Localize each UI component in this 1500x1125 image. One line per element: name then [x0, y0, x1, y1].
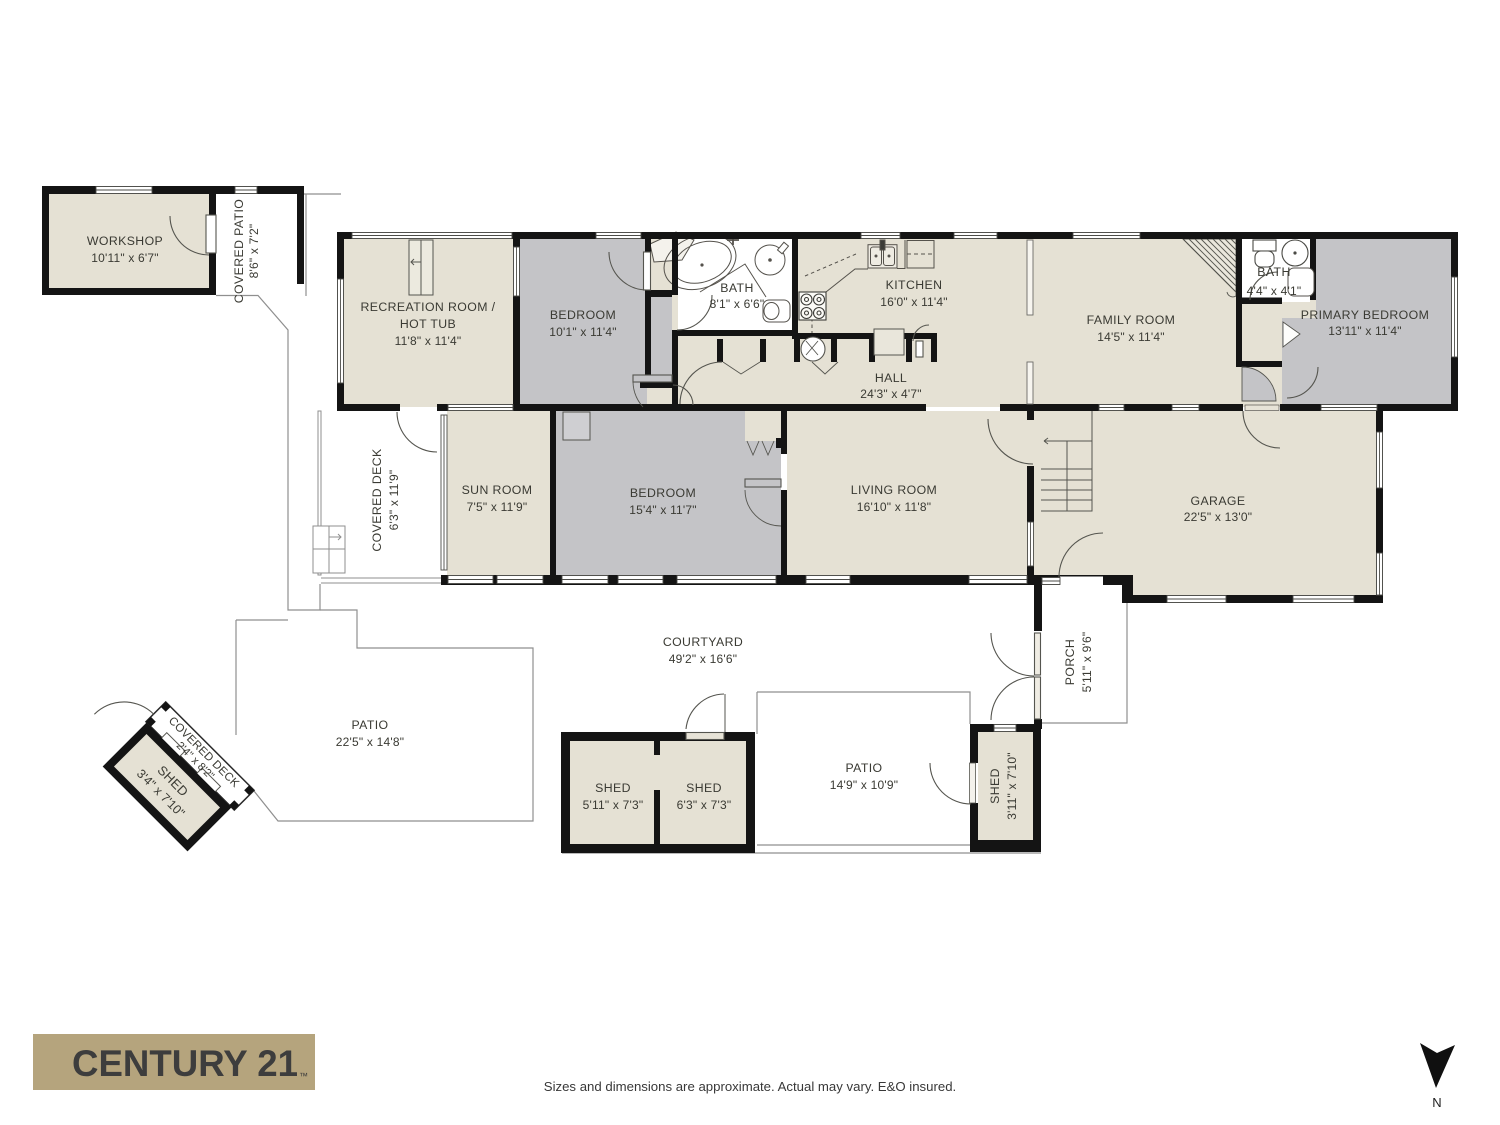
svg-text:KITCHEN: KITCHEN: [886, 278, 943, 292]
svg-text:14'5" x 11'4": 14'5" x 11'4": [1097, 330, 1165, 344]
svg-text:49'2" x 16'6": 49'2" x 16'6": [669, 652, 737, 666]
svg-text:4'4" x 4'1": 4'4" x 4'1": [1247, 284, 1302, 298]
svg-text:HALL: HALL: [875, 371, 907, 385]
svg-text:SHED: SHED: [686, 781, 722, 795]
svg-text:PRIMARY BEDROOM: PRIMARY BEDROOM: [1301, 308, 1430, 322]
svg-text:5'11" x 7'3": 5'11" x 7'3": [583, 798, 644, 812]
svg-text:COVERED DECK: COVERED DECK: [370, 448, 384, 552]
svg-text:CENTURY 21: CENTURY 21: [72, 1043, 298, 1084]
svg-text:BEDROOM: BEDROOM: [550, 308, 616, 322]
svg-text:N: N: [1432, 1095, 1441, 1110]
svg-text:WORKSHOP: WORKSHOP: [87, 234, 163, 248]
svg-text:HOT TUB: HOT TUB: [400, 317, 456, 331]
svg-text:SUN ROOM: SUN ROOM: [462, 483, 533, 497]
svg-text:PATIO: PATIO: [351, 718, 388, 732]
svg-text:PORCH: PORCH: [1063, 639, 1077, 685]
svg-text:11'8" x 11'4": 11'8" x 11'4": [395, 334, 462, 348]
svg-text:FAMILY ROOM: FAMILY ROOM: [1087, 313, 1176, 327]
svg-text:BATH: BATH: [1257, 265, 1290, 279]
svg-text:13'11" x 11'4": 13'11" x 11'4": [1328, 324, 1402, 338]
svg-text:8'1" x 6'6": 8'1" x 6'6": [710, 297, 765, 311]
svg-text:16'10" x 11'8": 16'10" x 11'8": [857, 500, 931, 514]
svg-text:PATIO: PATIO: [845, 761, 882, 775]
svg-text:LIVING ROOM: LIVING ROOM: [851, 483, 937, 497]
svg-text:SHED: SHED: [988, 768, 1002, 804]
svg-text:22'5" x 13'0": 22'5" x 13'0": [1184, 510, 1252, 524]
svg-text:SHED: SHED: [595, 781, 631, 795]
svg-text:10'11" x 6'7": 10'11" x 6'7": [91, 251, 159, 265]
svg-text:15'4" x 11'7": 15'4" x 11'7": [629, 503, 697, 517]
svg-text:BATH: BATH: [720, 281, 753, 295]
svg-text:22'5" x 14'8": 22'5" x 14'8": [336, 735, 404, 749]
svg-text:GARAGE: GARAGE: [1190, 494, 1245, 508]
svg-text:RECREATION ROOM /: RECREATION ROOM /: [360, 300, 495, 314]
svg-text:24'3" x 4'7": 24'3" x 4'7": [860, 387, 922, 401]
svg-text:3'11" x 7'10": 3'11" x 7'10": [1005, 752, 1019, 820]
svg-text:6'3" x 7'3": 6'3" x 7'3": [677, 798, 732, 812]
svg-text:COVERED PATIO: COVERED PATIO: [232, 199, 246, 304]
svg-text:14'9" x 10'9": 14'9" x 10'9": [830, 778, 898, 792]
svg-text:6'3" x 11'9": 6'3" x 11'9": [387, 470, 401, 531]
svg-text:BEDROOM: BEDROOM: [630, 486, 696, 500]
svg-text:COURTYARD: COURTYARD: [663, 635, 743, 649]
svg-text:16'0" x 11'4": 16'0" x 11'4": [880, 295, 948, 309]
svg-text:™: ™: [299, 1071, 308, 1081]
svg-text:5'11" x 9'6": 5'11" x 9'6": [1080, 632, 1094, 693]
svg-text:7'5" x 11'9": 7'5" x 11'9": [467, 500, 528, 514]
svg-text:8'6" x 7'2": 8'6" x 7'2": [247, 224, 261, 279]
svg-text:Sizes and dimensions are appro: Sizes and dimensions are approximate. Ac…: [544, 1079, 956, 1094]
svg-text:10'1" x 11'4": 10'1" x 11'4": [549, 325, 617, 339]
